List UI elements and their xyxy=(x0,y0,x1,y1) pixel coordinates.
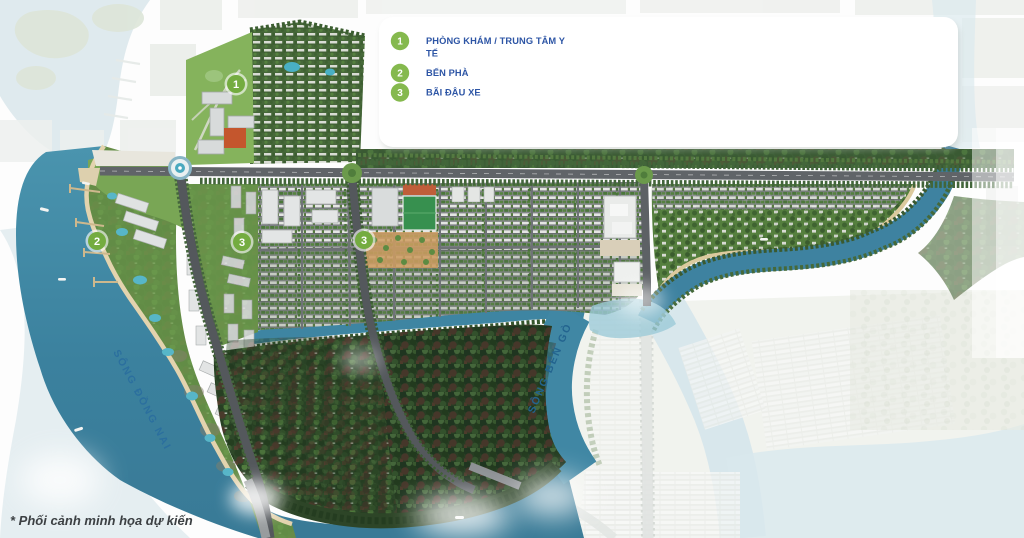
svg-text:TẾ: TẾ xyxy=(426,49,438,59)
svg-text:* Phối cảnh minh họa dự kiến: * Phối cảnh minh họa dự kiến xyxy=(10,513,193,528)
svg-text:3: 3 xyxy=(239,237,245,249)
svg-text:2: 2 xyxy=(94,236,100,248)
svg-text:1: 1 xyxy=(233,79,239,91)
svg-text:BẾN PHÀ: BẾN PHÀ xyxy=(426,68,469,78)
svg-text:3: 3 xyxy=(397,88,403,99)
svg-text:2: 2 xyxy=(397,69,403,80)
svg-text:1: 1 xyxy=(397,37,403,48)
svg-text:3: 3 xyxy=(361,235,367,247)
svg-text:BÃI ĐẬU XE: BÃI ĐẬU XE xyxy=(426,87,481,98)
svg-text:PHÒNG KHÁM / TRUNG TÂM Y: PHÒNG KHÁM / TRUNG TÂM Y xyxy=(426,35,566,46)
